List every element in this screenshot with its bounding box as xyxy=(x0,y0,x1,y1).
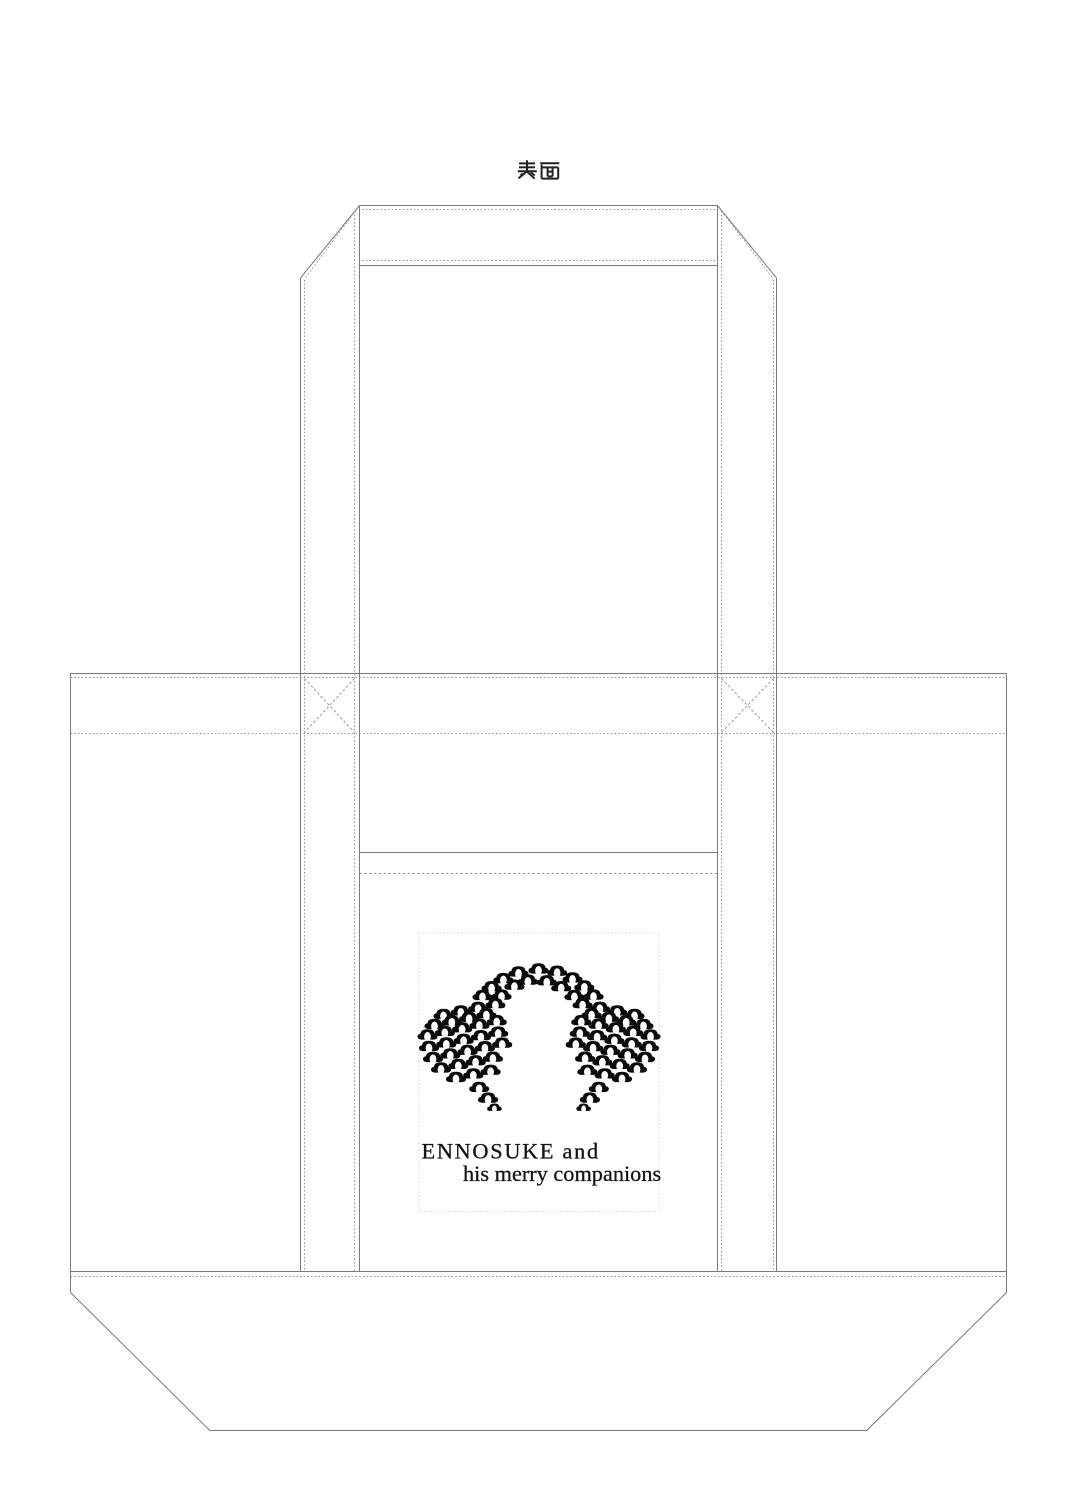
svg-text:his merry companions: his merry companions xyxy=(463,1161,661,1186)
svg-text:ENNOSUKE and: ENNOSUKE and xyxy=(422,1139,600,1164)
